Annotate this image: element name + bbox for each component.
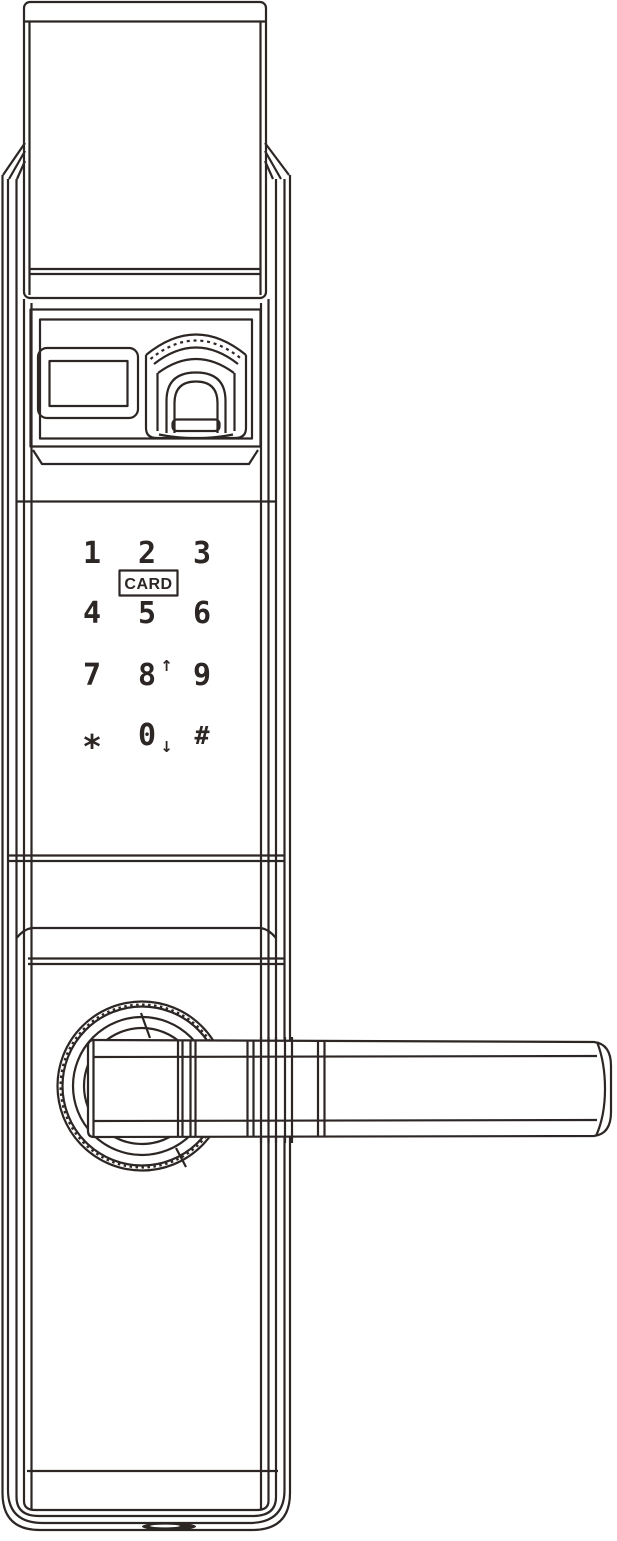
fingerprint-scanner (146, 335, 246, 439)
key-4: 4 (83, 596, 101, 631)
key-6: 6 (193, 596, 211, 631)
key-hash: # (194, 721, 209, 750)
lever-handle (88, 1037, 611, 1143)
finger-dome-base (173, 420, 220, 432)
key-0: 0 (138, 718, 156, 753)
top-cap (24, 2, 266, 298)
scanner-band-bottom-arc (158, 359, 234, 373)
keypad: 1 2 3 CARD 4 5 6 7 8 ↑ 9 * 0 ↓ # (82, 536, 211, 766)
arrow-up-icon: ↑ (160, 657, 173, 675)
top-cap-outline (24, 2, 266, 298)
lock-drawing-canvas: 1 2 3 CARD 4 5 6 7 8 ↑ 9 * 0 ↓ # (0, 0, 617, 1541)
scanner-band-inner-arc (154, 348, 238, 365)
key-7: 7 (83, 658, 101, 693)
scanner-housing (146, 355, 246, 438)
sensor-panel (31, 310, 261, 447)
bevel-under-sensor-panel (33, 450, 258, 464)
card-label: CARD (124, 576, 172, 593)
lever-top-inner-line (93, 1056, 597, 1057)
key-5: 5 (138, 596, 156, 631)
key-2: 2 (138, 536, 156, 571)
lever-bottom-inner-line (93, 1120, 597, 1121)
door-lock-line-drawing: 1 2 3 CARD 4 5 6 7 8 ↑ 9 * 0 ↓ # (0, 0, 617, 1541)
indicator-window-bezel (38, 348, 138, 418)
key-star: * (82, 727, 102, 766)
bottom-screw-slot-highlight (150, 1525, 180, 1528)
lever-outline (88, 1040, 611, 1137)
key-8: 8 (138, 658, 156, 693)
face-seams (8, 450, 286, 964)
lock-body-outline (3, 143, 291, 1531)
finger-dome-inner (175, 382, 218, 434)
indicator-window (50, 361, 128, 406)
arrow-down-icon: ↓ (160, 738, 173, 756)
key-1: 1 (83, 536, 101, 571)
key-9: 9 (193, 658, 211, 693)
key-3: 3 (193, 536, 211, 571)
body-contour-4 (24, 299, 269, 1510)
scanner-top-arc (146, 335, 246, 356)
waist-strap-seam (17, 928, 277, 938)
